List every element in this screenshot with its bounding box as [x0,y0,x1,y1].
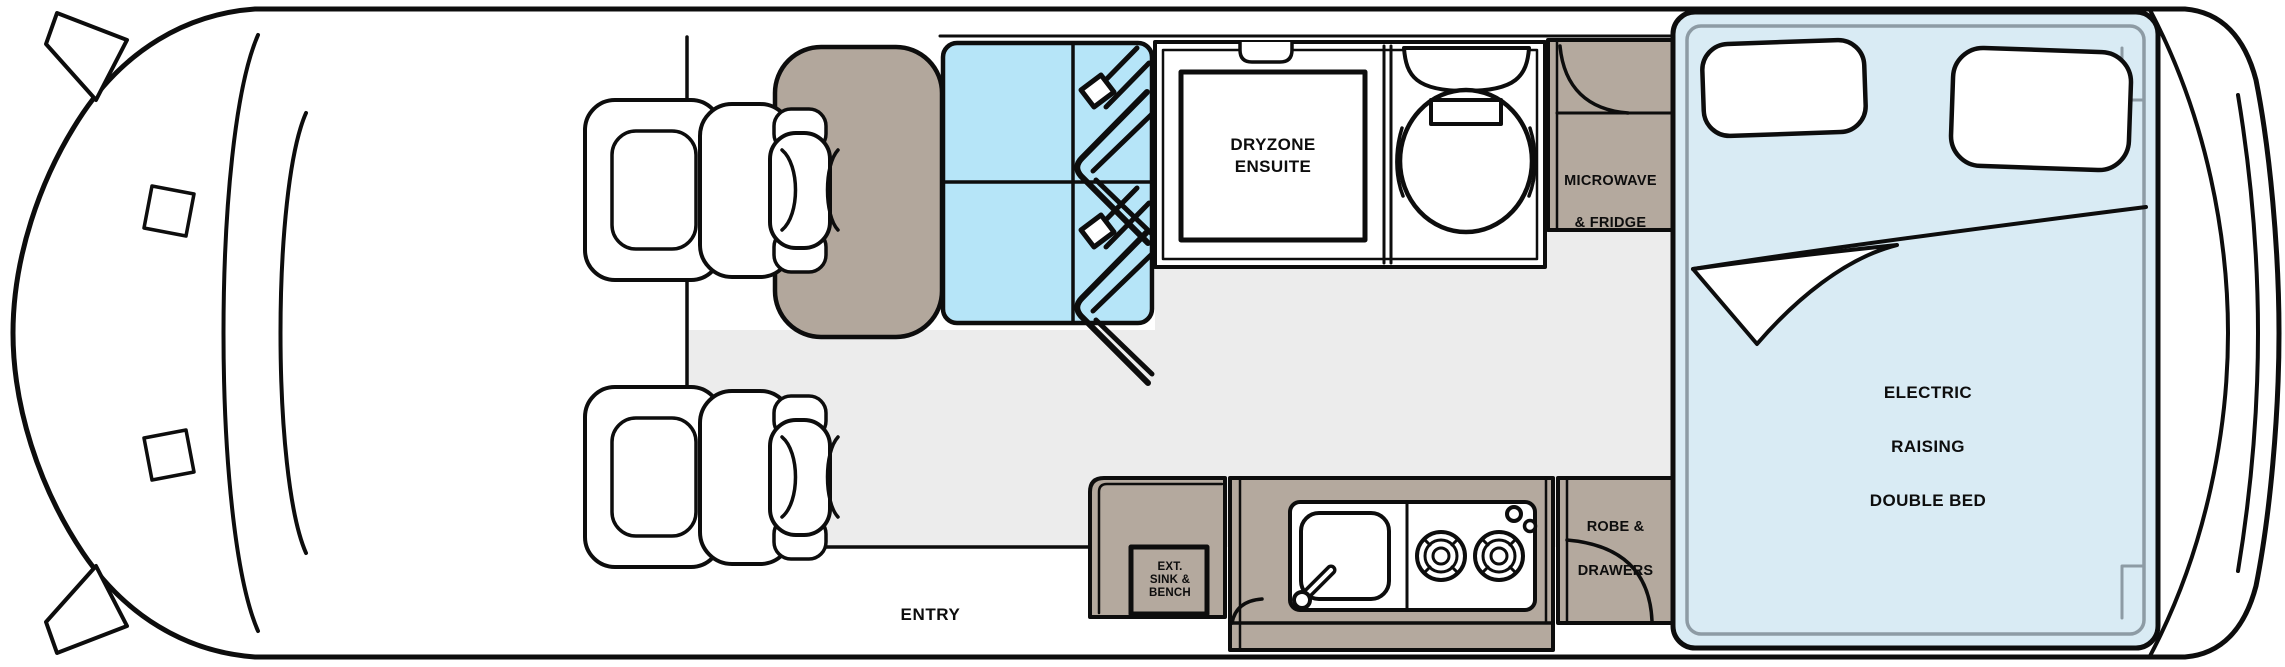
ext-sink-label-line3: BENCH [1131,587,1209,600]
double-bed [1673,12,2158,648]
headlight-icon [144,186,194,236]
ensuite-label-line1: DRYZONE [1181,134,1365,156]
floorplan-canvas: DRYZONE ENSUITE MICROWAVE & FRIDGE EXT. … [0,0,2285,667]
toilet-icon [1397,48,1535,232]
seat-headrest [770,420,830,535]
pillow-icon [1701,39,1866,137]
microwave-fridge-label: MICROWAVE & FRIDGE [1548,150,1673,234]
seat-headrest [770,133,830,248]
ext-sink-label-line1: EXT. [1131,561,1209,574]
driver-seat [585,100,838,280]
bed-label-line2: RAISING [1891,437,1965,456]
bed-label-line3: DOUBLE BED [1870,491,1986,510]
passenger-seat [585,387,838,567]
entry-label: ENTRY [858,582,1003,626]
bed-label: ELECTRIC RAISING DOUBLE BED [1833,352,2023,514]
entry-label-text: ENTRY [901,605,961,624]
microwave-label-line2: & FRIDGE [1575,215,1647,231]
ext-sink-label-line2: SINK & [1131,574,1209,587]
kitchen-bench [1230,478,1553,650]
robe-drawers-label: ROBE & DRAWERS [1556,494,1675,582]
headlight-icon [144,430,194,480]
stove-knob-icon [1507,507,1521,521]
seat-cushion-inner [612,131,696,249]
ext-sink-bench-label: EXT. SINK & BENCH [1131,547,1209,614]
pillow-icon [1950,47,2132,171]
seat-cushion-inner [612,418,696,536]
microwave-label-line1: MICROWAVE [1564,173,1657,189]
ensuite-label-line2: ENSUITE [1181,156,1365,178]
ensuite-label: DRYZONE ENSUITE [1181,72,1365,240]
stove-knob-icon [1525,521,1536,532]
robe-label-line1: ROBE & [1587,519,1645,535]
robe-label-line2: DRAWERS [1578,563,1654,579]
vent-notch-icon [1240,42,1292,62]
bed-label-line1: ELECTRIC [1884,383,1972,402]
sink-icon [1294,513,1389,608]
